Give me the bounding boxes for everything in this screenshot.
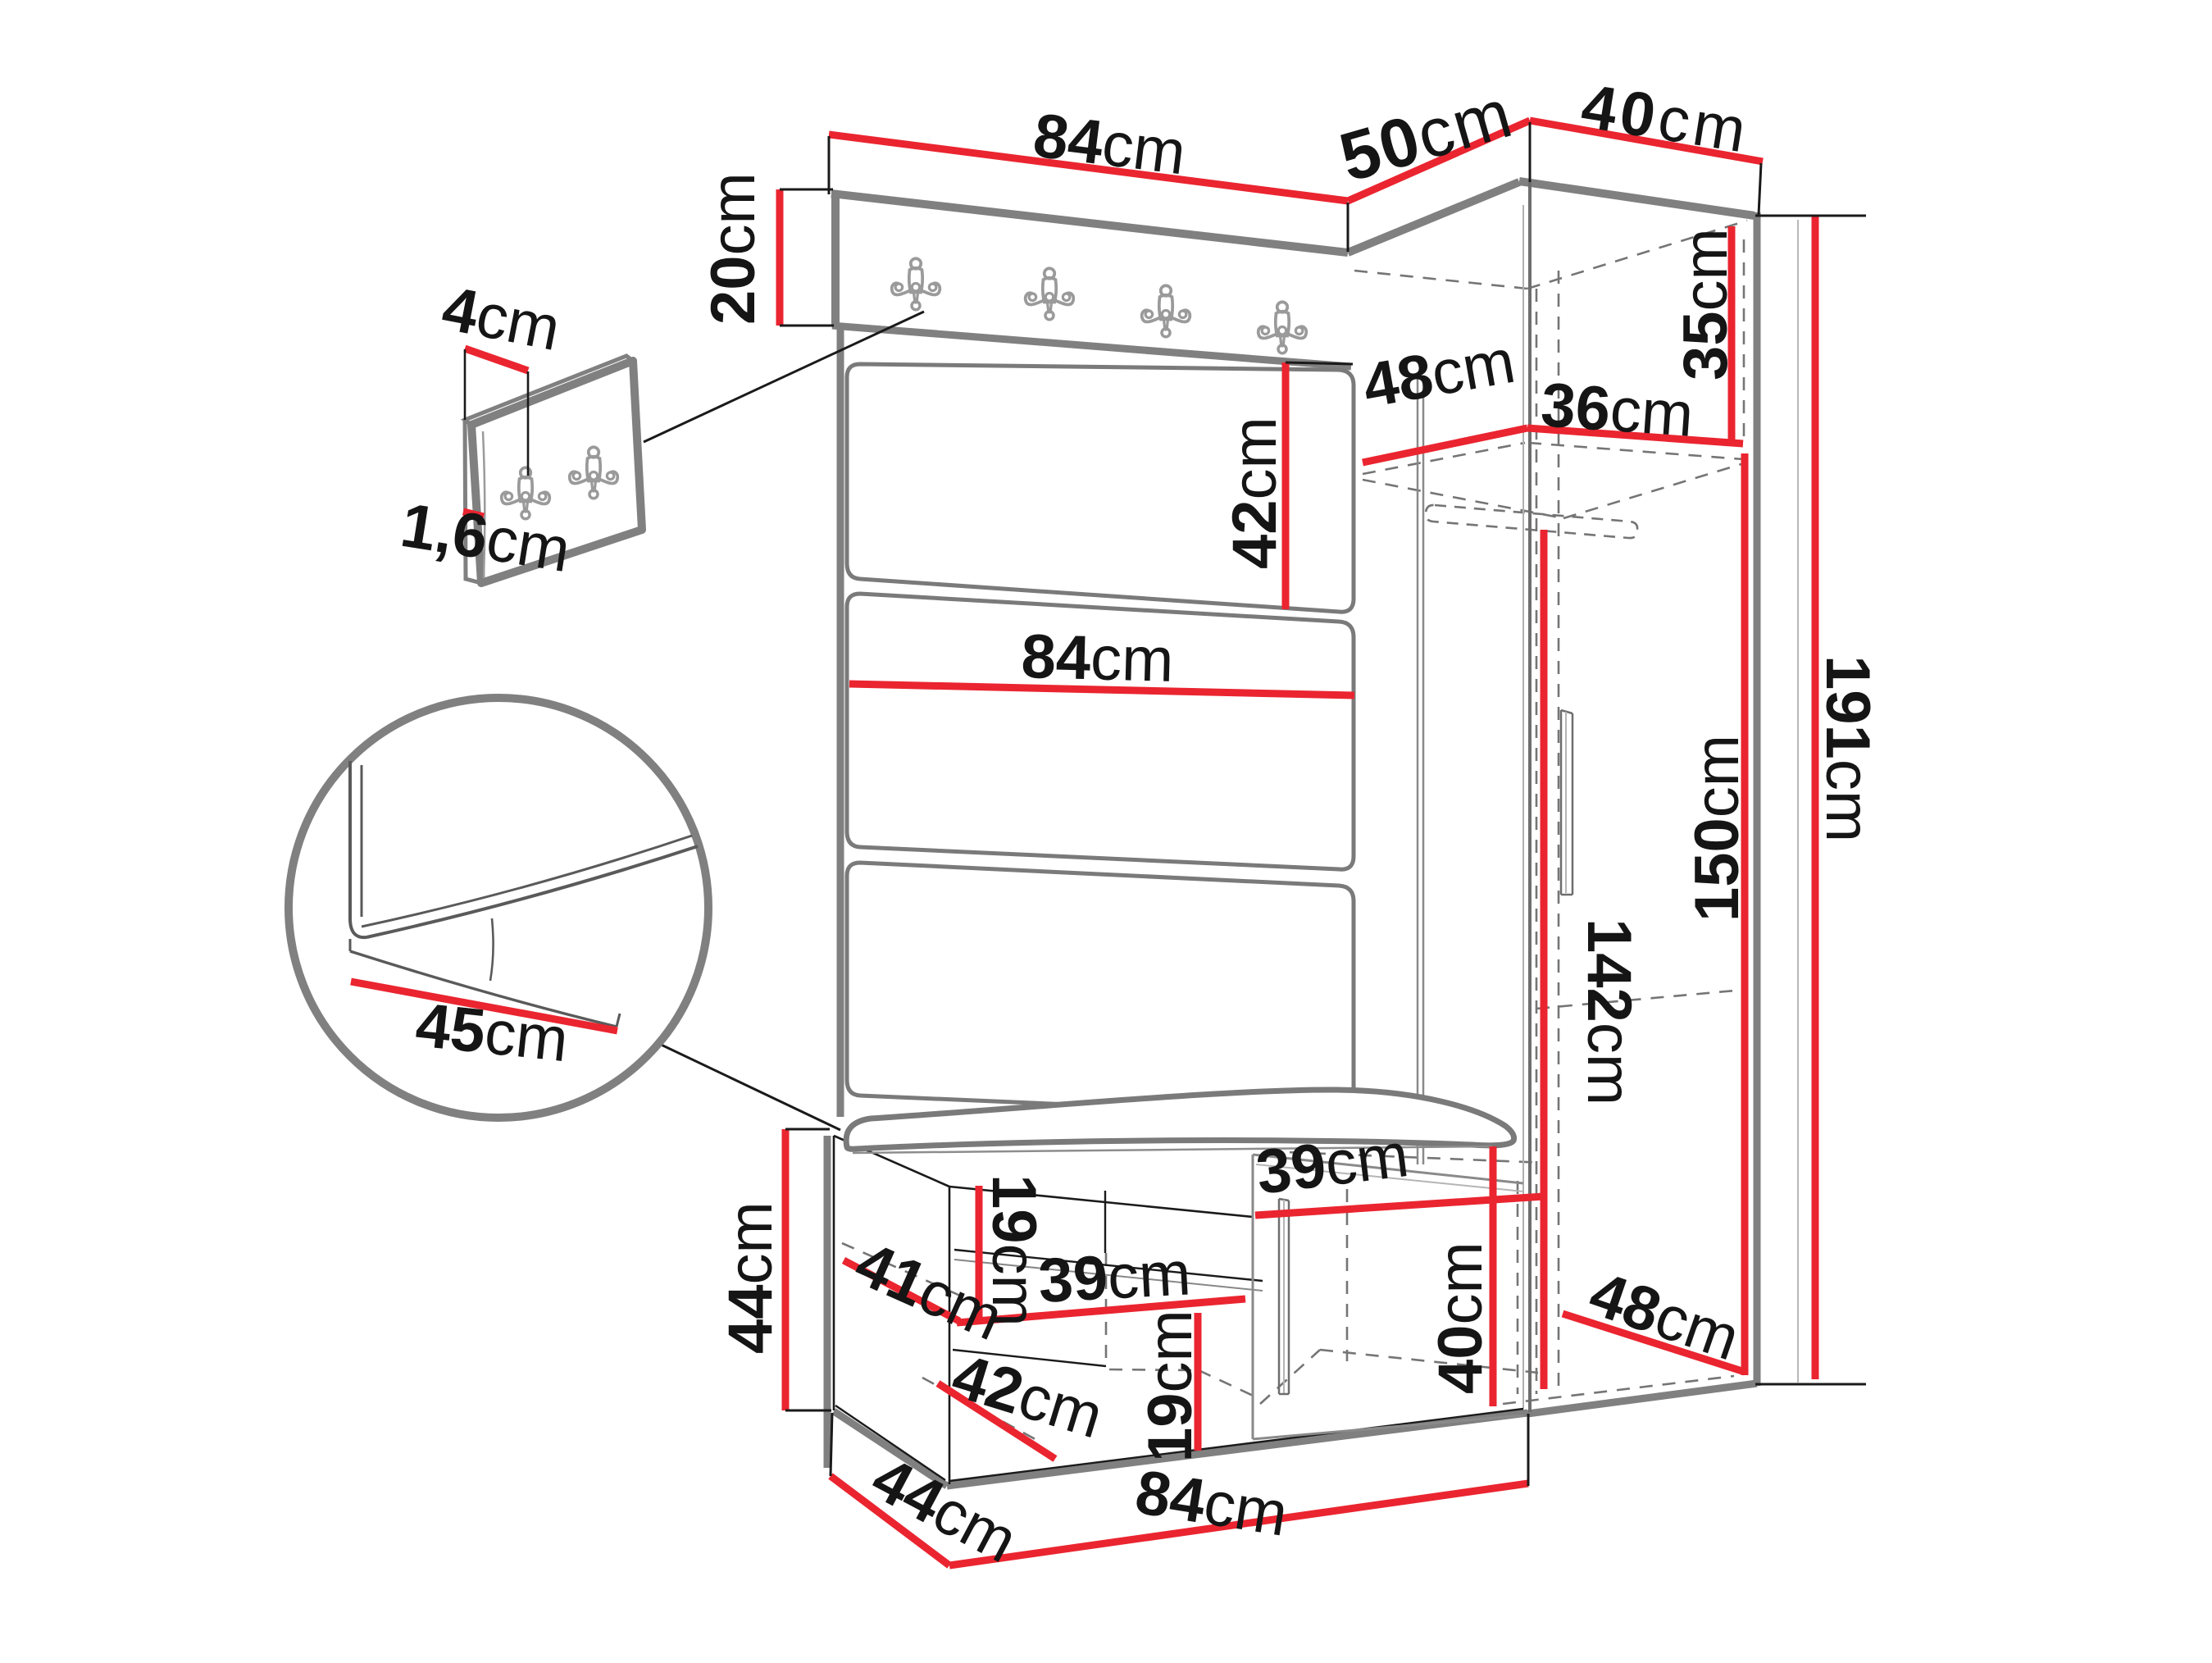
svg-text:35cm: 35cm xyxy=(1671,228,1741,380)
svg-text:39cm: 39cm xyxy=(1036,1238,1192,1316)
svg-text:20cm: 20cm xyxy=(699,172,768,325)
svg-text:150cm: 150cm xyxy=(1682,735,1752,922)
svg-text:19cm: 19cm xyxy=(1136,1310,1205,1462)
svg-text:42cm: 42cm xyxy=(1220,417,1290,569)
svg-text:44cm: 44cm xyxy=(716,1201,785,1354)
svg-text:36cm: 36cm xyxy=(1539,370,1695,450)
svg-text:40cm: 40cm xyxy=(1426,1242,1495,1394)
svg-text:84cm: 84cm xyxy=(1021,622,1175,695)
svg-text:142cm: 142cm xyxy=(1574,918,1644,1105)
svg-text:191cm: 191cm xyxy=(1813,655,1882,842)
